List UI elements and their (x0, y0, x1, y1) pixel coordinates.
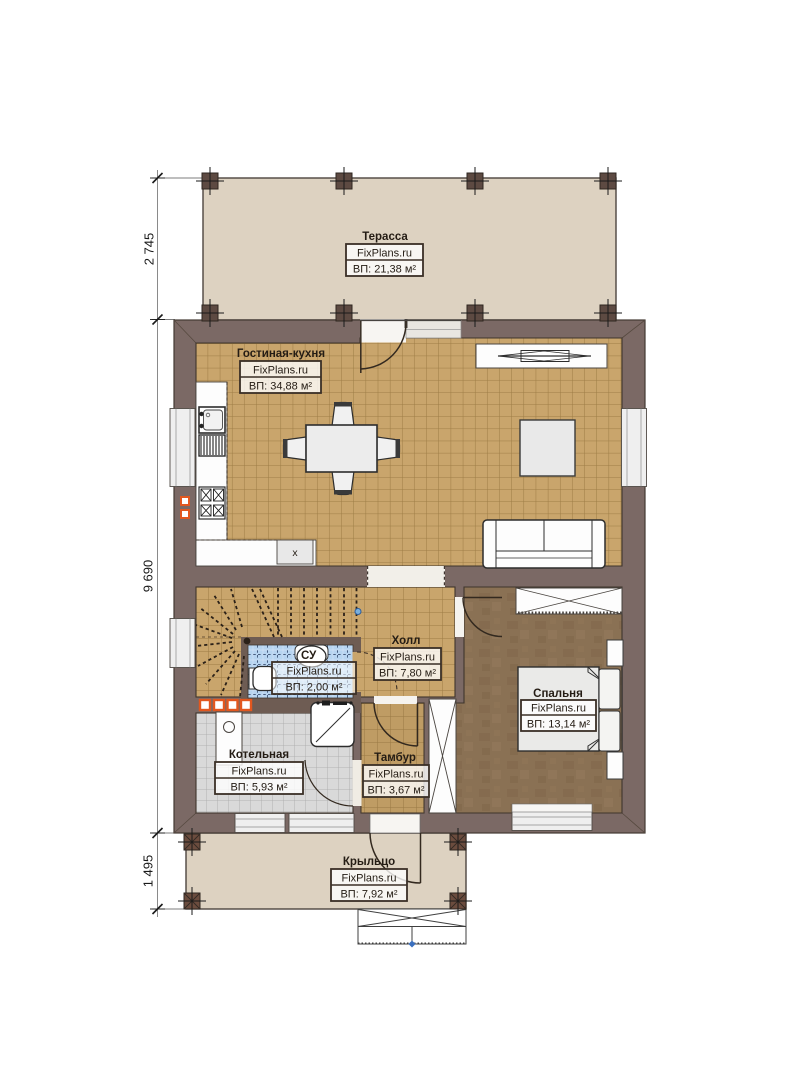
svg-text:ВП: 2,00 м²: ВП: 2,00 м² (285, 682, 342, 694)
svg-text:FixPlans.ru: FixPlans.ru (253, 365, 308, 377)
svg-text:Холл: Холл (392, 635, 421, 647)
svg-text:x: x (292, 547, 298, 559)
svg-text:Тамбур: Тамбур (374, 752, 416, 764)
svg-text:Терасса: Терасса (362, 231, 408, 243)
svg-text:Гостиная-кухня: Гостиная-кухня (237, 348, 325, 360)
svg-text:Котельная: Котельная (229, 749, 289, 761)
svg-text:FixPlans.ru: FixPlans.ru (286, 666, 341, 678)
svg-text:FixPlans.ru: FixPlans.ru (231, 766, 286, 778)
svg-text:9 690: 9 690 (140, 560, 155, 593)
svg-text:СУ: СУ (301, 650, 317, 662)
svg-text:ВП: 3,67 м²: ВП: 3,67 м² (367, 785, 424, 797)
svg-text:FixPlans.ru: FixPlans.ru (341, 873, 396, 885)
svg-text:ВП: 13,14 м²: ВП: 13,14 м² (527, 719, 591, 731)
svg-text:Крыльцо: Крыльцо (343, 856, 395, 868)
svg-text:ВП: 34,88 м²: ВП: 34,88 м² (249, 381, 313, 393)
svg-text:2 745: 2 745 (141, 233, 156, 266)
svg-text:FixPlans.ru: FixPlans.ru (357, 248, 412, 260)
svg-text:ВП: 7,92 м²: ВП: 7,92 м² (340, 889, 397, 901)
svg-text:ВП: 21,38 м²: ВП: 21,38 м² (353, 264, 417, 276)
svg-text:Спальня: Спальня (533, 688, 583, 700)
svg-text:FixPlans.ru: FixPlans.ru (531, 703, 586, 715)
svg-text:ВП: 5,93 м²: ВП: 5,93 м² (230, 782, 287, 794)
svg-text:FixPlans.ru: FixPlans.ru (368, 769, 423, 781)
svg-text:ВП: 7,80 м²: ВП: 7,80 м² (379, 668, 436, 680)
svg-text:1 495: 1 495 (140, 855, 155, 888)
svg-text:FixPlans.ru: FixPlans.ru (380, 652, 435, 664)
